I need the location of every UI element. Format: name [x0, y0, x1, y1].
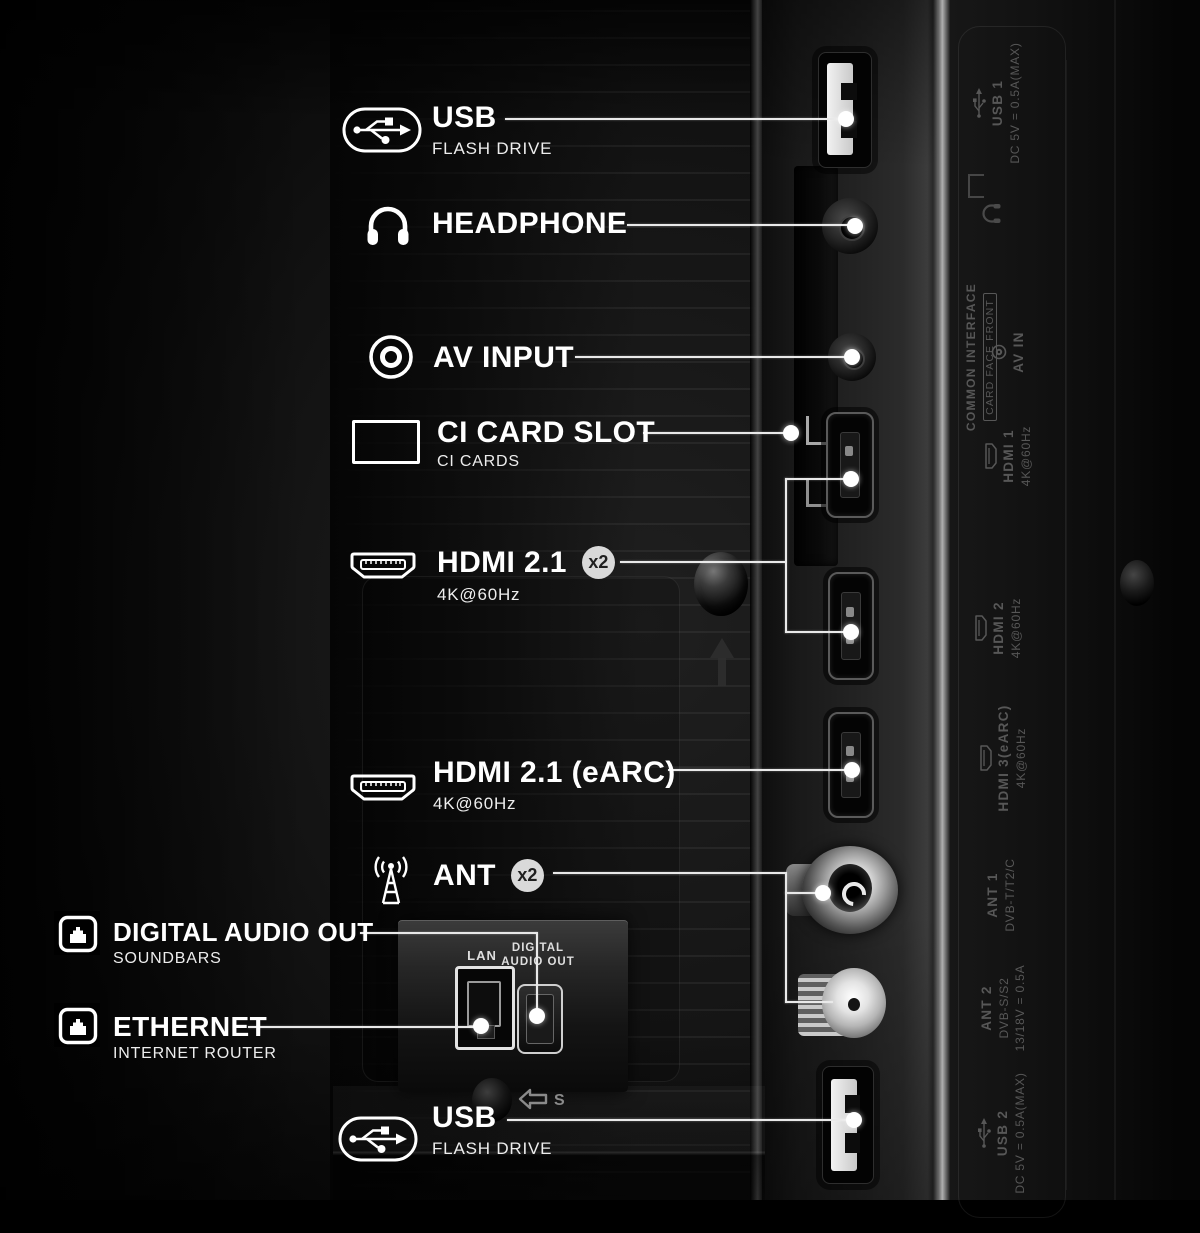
usb-icon: [338, 1116, 418, 1167]
hdmi-icon: [348, 771, 418, 810]
callout-title: USB: [432, 102, 552, 134]
callout-title: HDMI 2.1: [437, 547, 567, 579]
engraved-bracket-mark: [968, 174, 984, 198]
tv-back-panel-photo: LAN DIGITAL AUDIO OUT S USB 1 DC 5V = 0.…: [0, 0, 1200, 1200]
callout-subtitle: FLASH DRIVE: [432, 1139, 552, 1159]
s-label: S: [554, 1092, 565, 1110]
callout-line: [505, 118, 846, 120]
callout-line: [507, 1119, 854, 1121]
usb-icon: [342, 107, 422, 158]
tv-edge-highlight: [933, 0, 950, 1200]
callout-line: [785, 1001, 833, 1003]
callout-subtitle: INTERNET ROUTER: [113, 1045, 277, 1063]
x2-badge: x2: [582, 546, 615, 579]
usb-icon: [971, 86, 987, 120]
usb-tongue: [827, 63, 853, 155]
callout-title: CI CARD SLOT: [437, 417, 655, 449]
usb-contact: [845, 1095, 860, 1113]
x2-badge: x2: [511, 859, 544, 892]
engraved-hdmi1-label: HDMI 1 4K@60Hz: [967, 356, 1051, 556]
embossed-arrow-icon: [710, 638, 734, 658]
callout-subtitle: FLASH DRIVE: [432, 139, 552, 159]
callout-title: HEADPHONE: [432, 208, 627, 240]
side-plate-inner-line: [1066, 60, 1067, 1190]
callout-title: DIGITAL AUDIO OUT: [113, 919, 374, 946]
ethernet-jack-icon: [58, 915, 98, 958]
usb-icon: [976, 1116, 992, 1150]
callout-subtitle: 4K@60Hz: [437, 585, 615, 605]
callout-subtitle: 4K@60Hz: [433, 794, 676, 814]
headphone-icon: [364, 203, 412, 254]
usb-contact: [841, 83, 857, 100]
callout-line: [248, 1026, 481, 1028]
callout-title: USB: [432, 1102, 552, 1134]
callout-title: AV INPUT: [433, 342, 574, 374]
callout-line: [643, 432, 791, 434]
callout-line: [785, 631, 851, 633]
callout-line: [620, 561, 786, 563]
ci-card-icon: [352, 420, 420, 464]
callout-title: ETHERNET: [113, 1012, 277, 1041]
callout-subtitle: SOUNDBARS: [113, 950, 374, 968]
callout-dot: [844, 762, 860, 778]
callout-dot: [838, 111, 854, 127]
hdmi-icon: [348, 549, 418, 588]
usb-contact: [845, 1133, 860, 1153]
hdmi-icon: [984, 441, 998, 471]
callout-dot: [844, 349, 860, 365]
ant1-iec-connector: [780, 840, 910, 940]
callout-dot: [473, 1018, 489, 1034]
callout-dot: [529, 1008, 545, 1024]
callout-dot: [815, 885, 831, 901]
ethernet-jack-icon: [58, 1007, 98, 1050]
callout-dot: [846, 1112, 862, 1128]
lan-port: [455, 966, 515, 1050]
usb-port-1: [818, 52, 872, 168]
callout-dot: [843, 624, 859, 640]
callout-line: [553, 872, 786, 874]
callout-line: [536, 932, 538, 1016]
av-input-icon: [367, 333, 415, 386]
screw: [1120, 560, 1154, 606]
callout-line: [785, 478, 851, 480]
right-seam-line: [1114, 0, 1116, 1200]
callout-dot: [783, 425, 799, 441]
callout-title: HDMI 2.1 (eARC): [433, 757, 676, 789]
hdmi-port-1: [826, 412, 874, 518]
callout-line: [627, 224, 855, 226]
callout-dot: [847, 218, 863, 234]
antenna-icon: [364, 851, 418, 912]
engraved-usb2-label: USB 2 DC 5V = 0.5A(MAX): [960, 1033, 1044, 1233]
engraved-usb1-label: USB 1 DC 5V = 0.5A(MAX): [955, 3, 1039, 203]
callout-title: ANT: [433, 860, 496, 892]
callout-line: [668, 769, 852, 771]
callout-dot: [843, 471, 859, 487]
optical-port-label: DIGITAL AUDIO OUT: [495, 941, 581, 970]
callout-subtitle: CI CARDS: [437, 453, 655, 471]
callout-line: [785, 478, 787, 633]
callout-line: [360, 932, 537, 934]
hdmi-icon: [979, 743, 993, 773]
engraved-headphone-icon: [981, 202, 1008, 226]
callout-line: [575, 356, 852, 358]
hdmi-icon: [974, 613, 988, 643]
